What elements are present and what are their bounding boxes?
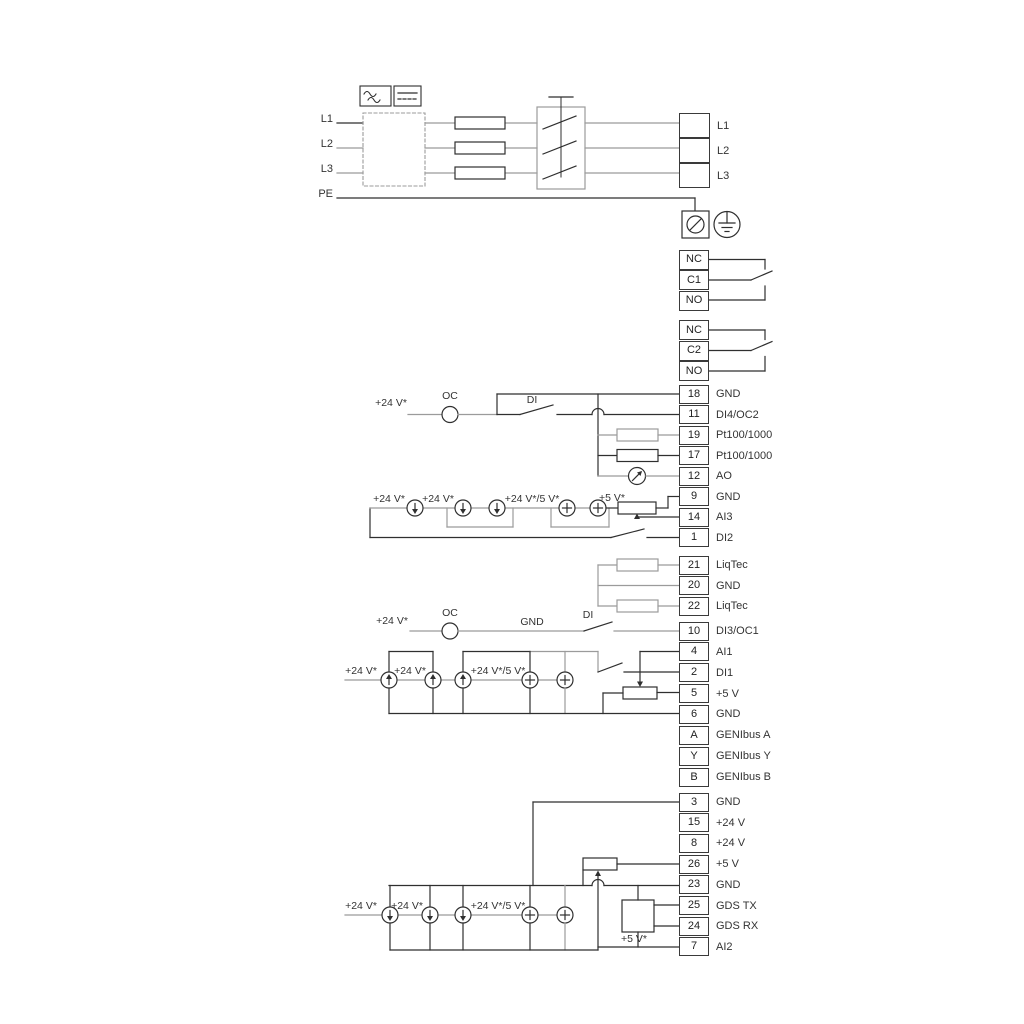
terminal-box-relay1: NC [679, 250, 709, 270]
terminal-label: +5 V [716, 858, 739, 870]
dc-symbol-icon [394, 86, 421, 106]
di2-switch-icon [611, 529, 644, 538]
terminal-box-io2: 5 [679, 684, 709, 703]
relay1-contact [709, 260, 772, 301]
terminal-box-io3: 25 [679, 896, 709, 915]
terminal-box-liqtec: 22 [679, 597, 709, 616]
terminal-label: Pt100/1000 [716, 429, 772, 441]
terminal-label: GENIbus B [716, 771, 771, 783]
terminal-label: GND [716, 580, 740, 592]
terminal-box-relay2: C2 [679, 341, 709, 361]
current-source-icon [425, 672, 441, 688]
wire-label: +24 V*/5 V* [471, 900, 526, 912]
terminal-label: AI2 [716, 941, 733, 953]
wire-label: +24 V* [422, 493, 454, 505]
terminal-box-io3: 26 [679, 855, 709, 874]
di-switch-icon [584, 622, 612, 631]
fuses [455, 117, 505, 179]
pe-wire [337, 198, 695, 211]
voltage-source-icon [557, 672, 573, 688]
relay2-contact [709, 330, 772, 371]
terminal-box-io1: 1 [679, 528, 709, 547]
terminal-label: L2 [717, 145, 729, 157]
terminal-label: DI3/OC1 [716, 625, 759, 637]
terminal-box-io1: 19 [679, 426, 709, 445]
terminal-label: LiqTec [716, 559, 748, 571]
mains-label: L1 [321, 113, 333, 125]
option-bracket [447, 508, 609, 527]
terminal-label: +24 V [716, 817, 745, 829]
di1-switch-icon [598, 663, 622, 672]
ao-meter-icon [598, 468, 679, 485]
ai1-potentiometer [603, 652, 679, 714]
di3-circuit [410, 622, 679, 639]
terminal-box-io3: 24 [679, 917, 709, 936]
terminal-label: +5 V [716, 688, 739, 700]
mains-label: L3 [321, 163, 333, 175]
mains-label: L2 [321, 138, 333, 150]
main-switch [537, 97, 585, 189]
wire-label: +24 V* [345, 665, 377, 677]
terminal-box-liqtec: 20 [679, 576, 709, 595]
terminal-label: GND [716, 879, 740, 891]
terminal-label: DI2 [716, 532, 733, 544]
terminal-box-power_out [679, 163, 710, 188]
terminal-box-io2: 4 [679, 642, 709, 661]
wiring-diagram: L1L2L3NCC1NONCC2NO18GND11DI4/OC219Pt100/… [0, 0, 1024, 1024]
wire-label: OC [442, 607, 458, 619]
terminal-box-io3: 15 [679, 813, 709, 832]
terminal-label: GND [716, 388, 740, 400]
terminal-label: GDS RX [716, 920, 758, 932]
terminal-box-io1: 11 [679, 405, 709, 424]
terminal-label: GND [716, 796, 740, 808]
terminal-label: GND [716, 708, 740, 720]
terminal-label: AI3 [716, 511, 733, 523]
filter-box [363, 113, 425, 186]
terminal-box-io2: B [679, 768, 709, 787]
current-source-icon [455, 907, 471, 923]
current-source-icon [489, 500, 505, 516]
terminal-label: GENIbus A [716, 729, 770, 741]
terminal-box-relay1: NO [679, 291, 709, 311]
current-source-icon [422, 907, 438, 923]
wiring-svg [0, 0, 1024, 1024]
voltage-source-icon [557, 907, 573, 923]
current-source-icon [455, 500, 471, 516]
current-source-icon [407, 500, 423, 516]
wire-label: +24 V* [376, 615, 408, 627]
wire-label: GND [520, 616, 543, 628]
wire-label: DI [527, 394, 538, 406]
liqtec-sensors [598, 559, 679, 612]
terminal-box-relay2: NO [679, 361, 709, 381]
wire-label: +24 V* [345, 900, 377, 912]
terminal-box-liqtec: 21 [679, 556, 709, 575]
terminal-box-io1: 14 [679, 508, 709, 527]
terminal-box-io1: 12 [679, 467, 709, 486]
terminal-box-io1: 17 [679, 446, 709, 465]
ai2-circuit [345, 802, 679, 950]
terminal-label: LiqTec [716, 600, 748, 612]
terminal-label: DI1 [716, 667, 733, 679]
terminal-box-relay1: C1 [679, 270, 709, 290]
wire-label: +24 V* [391, 900, 423, 912]
ai1-circuit [345, 652, 679, 714]
terminal-box-io2: A [679, 726, 709, 745]
pe-terminal-icon [682, 211, 709, 238]
pt100-sensor-2 [598, 450, 679, 462]
wire-label: +24 V*/5 V* [471, 665, 526, 677]
terminal-box-power_out [679, 113, 710, 138]
terminal-label: GDS TX [716, 900, 757, 912]
terminal-label: AO [716, 470, 732, 482]
terminal-label: GENIbus Y [716, 750, 771, 762]
wire-label: +24 V* [375, 397, 407, 409]
oc-output-icon [442, 623, 458, 639]
terminal-label: DI4/OC2 [716, 409, 759, 421]
oc-output-icon [442, 407, 458, 423]
wire-label: OC [442, 390, 458, 402]
terminal-box-io3: 23 [679, 875, 709, 894]
mains-input-wires [337, 123, 363, 173]
mains-label: PE [318, 188, 333, 200]
terminal-box-io2: 2 [679, 663, 709, 682]
terminal-label: +24 V [716, 837, 745, 849]
terminal-box-io3: 7 [679, 937, 709, 956]
terminal-box-io2: 10 [679, 622, 709, 641]
terminal-label: AI1 [716, 646, 733, 658]
terminal-box-relay2: NC [679, 320, 709, 340]
wire-label: +5 V* [621, 933, 647, 945]
wire-label: +24 V*/5 V* [505, 493, 560, 505]
wire-label: +24 V* [394, 665, 426, 677]
terminal-box-io2: 6 [679, 705, 709, 724]
terminal-box-io2: Y [679, 747, 709, 766]
voltage-source-icon [559, 500, 575, 516]
terminal-box-io1: 9 [679, 487, 709, 506]
wire-label: DI [583, 609, 594, 621]
terminal-box-io3: 3 [679, 793, 709, 812]
earth-icon [714, 212, 740, 238]
terminal-label: GND [716, 491, 740, 503]
ac-symbol-icon [360, 86, 391, 106]
wire-label: +5 V* [599, 492, 625, 504]
terminal-box-power_out [679, 138, 710, 163]
terminal-label: Pt100/1000 [716, 450, 772, 462]
di-switch-icon [520, 405, 553, 415]
current-source-icon [455, 672, 471, 688]
terminal-label: L1 [717, 120, 729, 132]
terminal-box-io3: 8 [679, 834, 709, 853]
terminal-box-io1: 18 [679, 385, 709, 404]
terminal-label: L3 [717, 170, 729, 182]
wire-label: +24 V* [373, 493, 405, 505]
pt100-sensor-1 [598, 429, 679, 441]
